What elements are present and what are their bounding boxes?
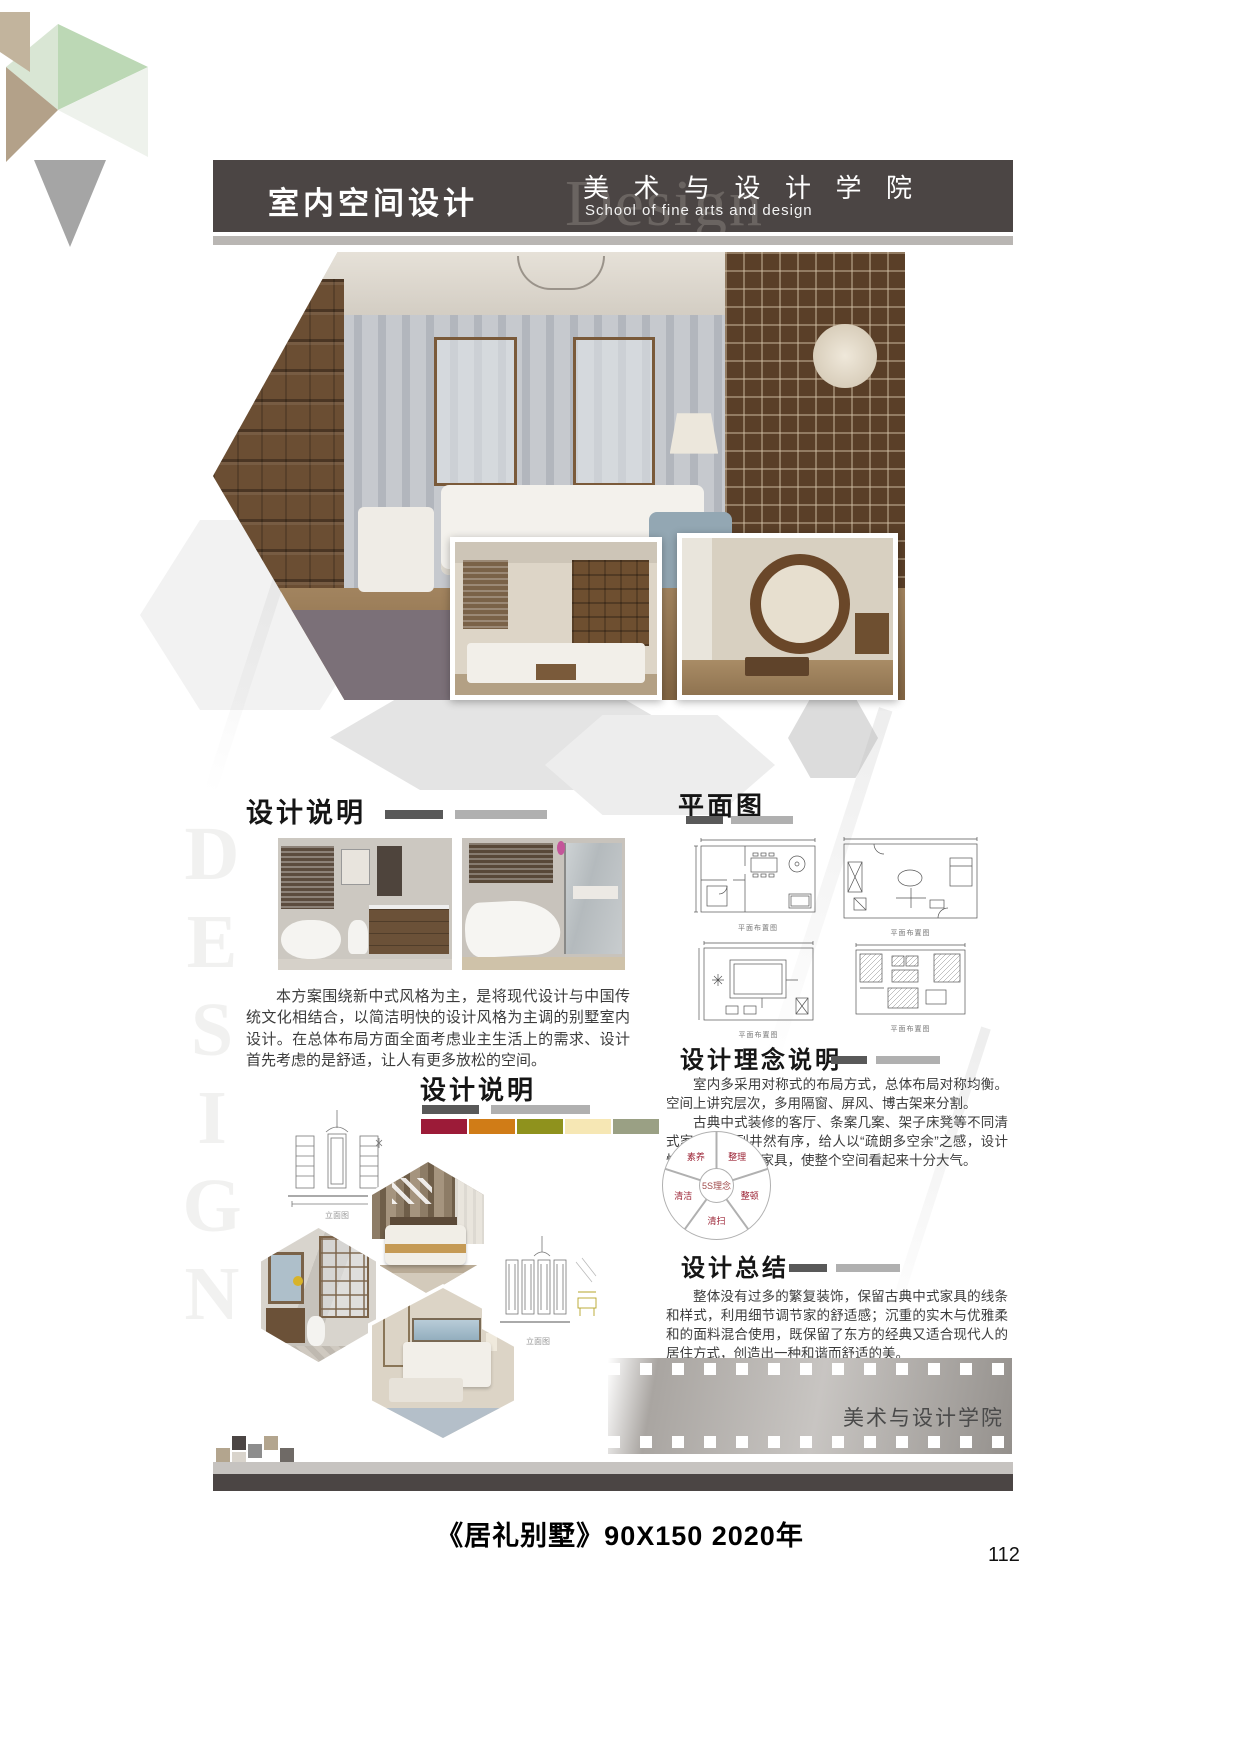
poster-page: DESIGN Design 室内空间设计 美 术 与 设 计 学 院 Schoo… [0,0,1240,1754]
photo-bookshelf [572,560,649,646]
photo-artwork [412,1318,481,1342]
page-number: 112 [988,1544,1020,1567]
photo-side-sofa [358,507,434,592]
floor-plan-1: 平面布置图 [693,836,823,933]
elevation-caption-2: 立面图 [526,1336,550,1346]
photo-orchid [557,841,565,855]
wheel-center-label: 5S理念 [702,1180,731,1191]
photo-floor-lamp [670,413,718,453]
photo-counter [573,886,619,899]
photo-floor [261,1346,376,1362]
photo-fan-decor [813,324,877,388]
photo-left-wall [682,538,712,660]
poster-title: 室内空间设计 [268,178,478,223]
heading-bar-light [455,810,547,819]
photo-art-frame [341,849,371,885]
floor-plan-caption: 平面布置图 [693,923,823,933]
wheel-label-5: 素养 [687,1151,705,1162]
photo-floor [278,959,452,970]
heading-bar-light [876,1056,940,1064]
inset-moon-window-photo [677,533,898,700]
floor-plan-caption: 平面布置图 [848,1024,973,1034]
photo-shower-glass [564,843,621,954]
filmstrip-banner: 美术与设计学院 [608,1358,1012,1454]
photo-toilet [348,920,369,954]
floor-plan-2: 平面布置图 [838,836,983,938]
photo-blinds [463,560,507,629]
photo-low-table [745,657,808,676]
wheel-label-4: 清洁 [674,1190,692,1201]
mosaic-square [232,1436,246,1450]
mosaic-square [248,1444,262,1458]
filmstrip-holes-top [608,1363,1012,1375]
photo-table [536,664,576,679]
bathroom-photo-1 [278,838,452,970]
section-heading-summary: 设计总结 [681,1248,789,1283]
artwork-caption: 《居礼别墅》90X150 2020年 [0,1514,1240,1553]
heading-bar-dark [831,1056,867,1064]
heading-bar-dark [686,816,723,824]
bathroom-photo-2 [462,838,625,970]
summary-paragraph: 整体没有过多的繁复装饰，保留古典中式家具的线条和样式，利用细节调节家的舒适感；沉… [666,1288,1008,1364]
floor-plan-caption: 平面布置图 [696,1030,821,1040]
heading-bar-light [836,1264,900,1272]
side-watermark: DESIGN [168,812,255,1340]
photo-bench [389,1378,463,1402]
palette-swatch-4 [565,1119,611,1134]
photo-rug [372,1408,514,1438]
corner-deco-polygons [0,12,170,262]
school-name-en: School of fine arts and design [585,202,813,219]
school-name-cn: 美 术 与 设 计 学 院 [583,168,921,205]
filmstrip-holes-bottom [608,1436,1012,1448]
elevation-caption-1: 立面图 [325,1210,349,1220]
mosaic-square [280,1448,294,1462]
concept-paragraph-1: 室内多采用对称式的布局方式，总体布局对称均衡。空间上讲究层次，多用隔窗、屏风、博… [666,1076,1008,1114]
photo-bathtub [281,920,340,960]
palette-swatch-2 [469,1119,515,1134]
photo-vanity [369,905,449,954]
banner-underline-stripe [213,236,1013,245]
palette-swatch-1 [421,1119,467,1134]
heading-bar-light [491,1105,590,1114]
heading-bar-light [731,816,793,824]
design-note-paragraph: 本方案围绕新中式风格为主，是将现代设计与中国传统文化相结合，以简洁明快的设计风格… [246,986,630,1071]
photo-toilet [307,1316,325,1345]
photo-mirror [377,846,401,896]
wheel-label-1: 整理 [728,1151,746,1162]
hex-bedroom-photo-1 [372,1162,484,1294]
footer-bar-light [213,1462,1013,1474]
wheel-label-2: 整顿 [741,1190,759,1201]
floor-plan-3: 平面布置图 [696,940,821,1040]
photo-floor [462,957,625,970]
photo-moon-gate [750,554,850,654]
photo-bed-runner [385,1244,466,1253]
section-heading-concept: 设计理念说明 [680,1040,842,1075]
footer-school-label: 美术与设计学院 [843,1402,1004,1432]
design-note-body: 本方案围绕新中式风格为主，是将现代设计与中国传统文化相结合，以简洁明快的设计风格… [246,986,630,1071]
palette-swatch-5 [613,1119,659,1134]
section-heading-design-note-2: 设计说明 [420,1070,536,1107]
photo-vanity [266,1308,305,1343]
photo-window-2 [573,337,655,486]
heading-bar-dark [422,1105,479,1114]
photo-blinds [469,843,554,883]
photo-lattice-screen [319,1236,369,1318]
mosaic-square [216,1448,230,1462]
hex-bathroom-photo [261,1228,376,1362]
section-heading-design-note: 设计说明 [246,791,366,830]
deco-triangle-gray [34,160,106,247]
hex-elevation-drawing-2: 立面图 [486,1222,612,1362]
wheel-label-3: 清扫 [707,1215,725,1226]
elevation-drawing-2: 立面图 [486,1222,612,1362]
floor-plan-caption: 平面布置图 [838,928,983,938]
photo-blinds [281,846,333,909]
header-banner: Design 室内空间设计 美 术 与 设 计 学 院 School of fi… [213,160,1013,232]
heading-bar-dark [789,1264,827,1272]
floor-plan-4: 平面布置图 [848,942,973,1034]
inset-living-room-photo [450,537,662,700]
summary-body: 整体没有过多的繁复装饰，保留古典中式家具的线条和样式，利用细节调节家的舒适感；沉… [666,1288,1008,1364]
heading-bar-dark [385,810,443,819]
mosaic-square [264,1436,278,1450]
color-palette [421,1119,659,1134]
footer-bar-dark [213,1474,1013,1491]
concept-wheel-diagram: 5S理念 整理 整顿 清扫 清洁 素养 [659,1128,774,1243]
photo-wall-decor [392,1178,432,1204]
photo-window-1 [434,337,516,486]
photo-cabinet [855,613,889,654]
palette-swatch-3 [517,1119,563,1134]
